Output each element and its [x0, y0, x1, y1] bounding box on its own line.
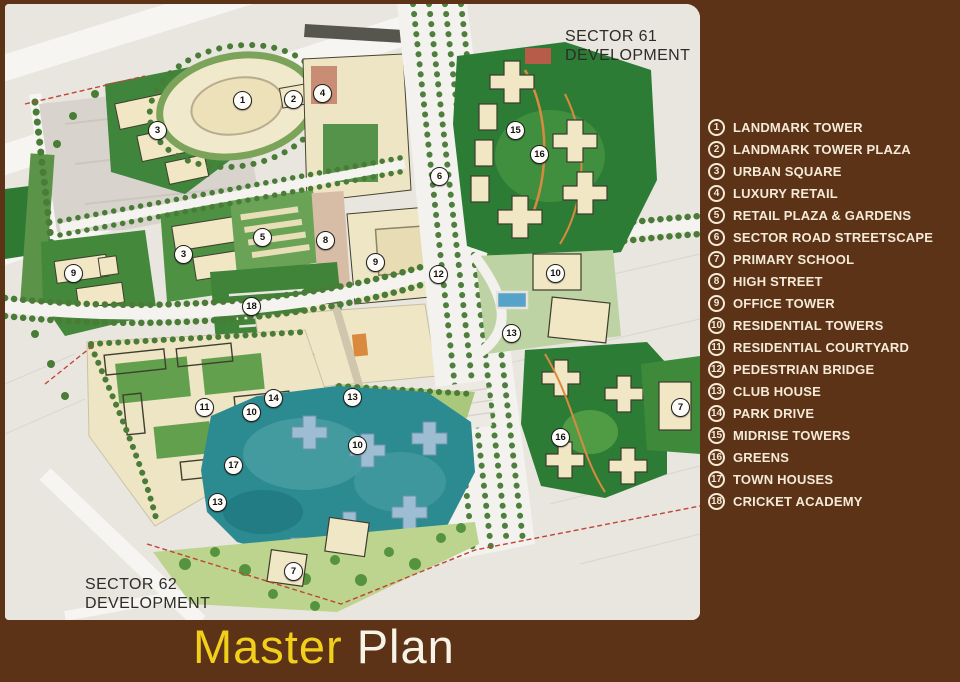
legend-item-label: PARK DRIVE	[733, 406, 814, 421]
page-title: Master Plan	[193, 619, 455, 674]
legend-item-3: 3URBAN SQUARE	[708, 160, 958, 182]
legend-item-17: 17TOWN HOUSES	[708, 468, 958, 490]
legend-item-number: 9	[708, 295, 725, 312]
legend-item-label: CLUB HOUSE	[733, 384, 821, 399]
legend-item-11: 11RESIDENTIAL COURTYARD	[708, 336, 958, 358]
legend-item-number: 15	[708, 427, 725, 444]
legend-item-label: PEDESTRIAN BRIDGE	[733, 362, 874, 377]
legend-item-13: 13CLUB HOUSE	[708, 380, 958, 402]
legend-list: 1LANDMARK TOWER2LANDMARK TOWER PLAZA3URB…	[708, 116, 958, 512]
red-roof-building	[525, 48, 551, 64]
legend-item-9: 9OFFICE TOWER	[708, 292, 958, 314]
legend-item-6: 6SECTOR ROAD STREETSCAPE	[708, 226, 958, 248]
map-marker-7: 7	[284, 562, 303, 581]
map-marker-2: 2	[284, 90, 303, 109]
legend-item-label: RESIDENTIAL COURTYARD	[733, 340, 909, 355]
legend-item-label: GREENS	[733, 450, 789, 465]
master-plan-map: SECTOR 61 DEVELOPMENTSECTOR 62 DEVELOPME…	[5, 4, 700, 620]
legend-item-10: 10RESIDENTIAL TOWERS	[708, 314, 958, 336]
map-marker-7: 7	[671, 398, 690, 417]
master-plan-slide: { "colors": { "panel_background": "#5c33…	[0, 0, 960, 682]
legend-item-label: RETAIL PLAZA & GARDENS	[733, 208, 911, 223]
legend-item-15: 15MIDRISE TOWERS	[708, 424, 958, 446]
legend-item-number: 6	[708, 229, 725, 246]
swimming-pool	[497, 292, 527, 308]
legend-item-7: 7PRIMARY SCHOOL	[708, 248, 958, 270]
map-marker-11: 11	[195, 398, 214, 417]
map-marker-6: 6	[430, 167, 449, 186]
legend-item-label: OFFICE TOWER	[733, 296, 835, 311]
map-marker-3: 3	[174, 245, 193, 264]
legend-item-5: 5RETAIL PLAZA & GARDENS	[708, 204, 958, 226]
legend-item-number: 14	[708, 405, 725, 422]
legend-item-number: 2	[708, 141, 725, 158]
legend-item-8: 8HIGH STREET	[708, 270, 958, 292]
legend-item-1: 1LANDMARK TOWER	[708, 116, 958, 138]
page-title-word2: Plan	[357, 620, 455, 673]
legend-item-number: 1	[708, 119, 725, 136]
map-marker-8: 8	[316, 231, 335, 250]
legend-item-16: 16GREENS	[708, 446, 958, 468]
legend-item-number: 16	[708, 449, 725, 466]
map-marker-10: 10	[242, 403, 261, 422]
map-marker-12: 12	[429, 265, 448, 284]
legend-item-label: LANDMARK TOWER	[733, 120, 863, 135]
title-bar: Master Plan	[0, 620, 960, 682]
lake-deep	[223, 490, 303, 534]
map-marker-4: 4	[313, 84, 332, 103]
legend-item-18: 18CRICKET ACADEMY	[708, 490, 958, 512]
map-marker-17: 17	[224, 456, 243, 475]
sector-label-2: SECTOR 62 DEVELOPMENT	[85, 576, 210, 614]
map-marker-13: 13	[343, 388, 362, 407]
legend-item-label: SECTOR ROAD STREETSCAPE	[733, 230, 933, 245]
map-marker-13: 13	[502, 324, 521, 343]
legend-item-number: 11	[708, 339, 725, 356]
map-marker-10: 10	[546, 264, 565, 283]
legend-item-label: CRICKET ACADEMY	[733, 494, 863, 509]
map-marker-16: 16	[530, 145, 549, 164]
legend-item-number: 10	[708, 317, 725, 334]
legend-item-label: TOWN HOUSES	[733, 472, 833, 487]
page-title-word1: Master	[193, 620, 343, 673]
legend-item-2: 2LANDMARK TOWER PLAZA	[708, 138, 958, 160]
legend-item-label: LUXURY RETAIL	[733, 186, 838, 201]
legend-item-4: 4LUXURY RETAIL	[708, 182, 958, 204]
legend-item-number: 3	[708, 163, 725, 180]
map-marker-3: 3	[148, 121, 167, 140]
map-marker-9: 9	[64, 264, 83, 283]
site-plan-drawing	[5, 4, 700, 620]
legend-item-number: 4	[708, 185, 725, 202]
legend-item-number: 12	[708, 361, 725, 378]
legend-item-label: RESIDENTIAL TOWERS	[733, 318, 883, 333]
map-marker-1: 1	[233, 91, 252, 110]
map-marker-5: 5	[253, 228, 272, 247]
retail-gardens	[230, 190, 321, 276]
map-marker-13: 13	[208, 493, 227, 512]
legend-item-12: 12PEDESTRIAN BRIDGE	[708, 358, 958, 380]
legend-item-label: MIDRISE TOWERS	[733, 428, 850, 443]
map-marker-14: 14	[264, 389, 283, 408]
map-marker-10: 10	[348, 436, 367, 455]
legend-item-number: 13	[708, 383, 725, 400]
map-marker-15: 15	[506, 121, 525, 140]
legend-item-14: 14PARK DRIVE	[708, 402, 958, 424]
legend-item-label: PRIMARY SCHOOL	[733, 252, 854, 267]
legend-item-number: 8	[708, 273, 725, 290]
legend-item-label: HIGH STREET	[733, 274, 823, 289]
map-marker-9: 9	[366, 253, 385, 272]
legend-item-number: 17	[708, 471, 725, 488]
map-marker-18: 18	[242, 297, 261, 316]
legend-item-label: LANDMARK TOWER PLAZA	[733, 142, 911, 157]
legend-item-number: 5	[708, 207, 725, 224]
legend-item-number: 18	[708, 493, 725, 510]
legend-item-label: URBAN SQUARE	[733, 164, 842, 179]
map-marker-16: 16	[551, 428, 570, 447]
legend-item-number: 7	[708, 251, 725, 268]
sector-label-1: SECTOR 61 DEVELOPMENT	[565, 28, 690, 66]
